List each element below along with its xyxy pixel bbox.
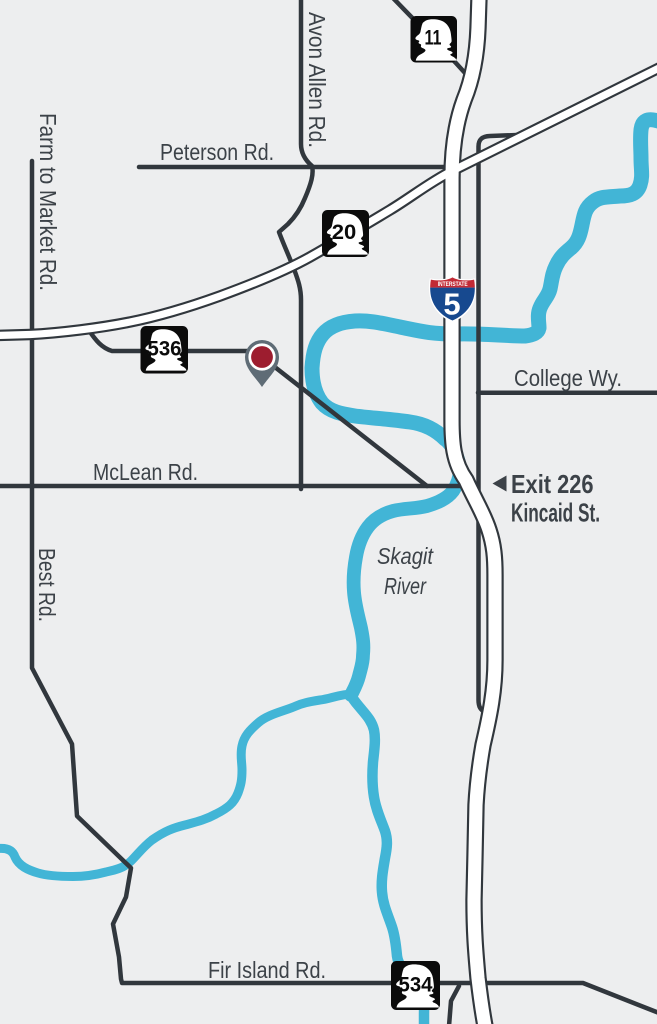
svg-text:Kincaid St.: Kincaid St. xyxy=(511,498,600,528)
svg-text:Best Rd.: Best Rd. xyxy=(34,548,60,622)
svg-text:Exit 226: Exit 226 xyxy=(511,469,594,499)
svg-text:River: River xyxy=(384,573,427,599)
svg-text:534: 534 xyxy=(399,974,433,997)
svg-text:5: 5 xyxy=(443,287,460,322)
svg-text:Farm to Market Rd.: Farm to Market Rd. xyxy=(35,113,61,291)
svg-text:Skagit: Skagit xyxy=(377,543,434,569)
svg-text:Fir Island Rd.: Fir Island Rd. xyxy=(208,957,326,983)
svg-text:Avon Allen Rd.: Avon Allen Rd. xyxy=(304,12,330,148)
svg-text:20: 20 xyxy=(332,221,357,244)
svg-text:536: 536 xyxy=(148,338,182,361)
svg-text:McLean Rd.: McLean Rd. xyxy=(93,459,198,485)
svg-text:11: 11 xyxy=(425,27,442,50)
svg-text:Peterson Rd.: Peterson Rd. xyxy=(160,139,274,165)
svg-text:College Wy.: College Wy. xyxy=(514,365,622,391)
